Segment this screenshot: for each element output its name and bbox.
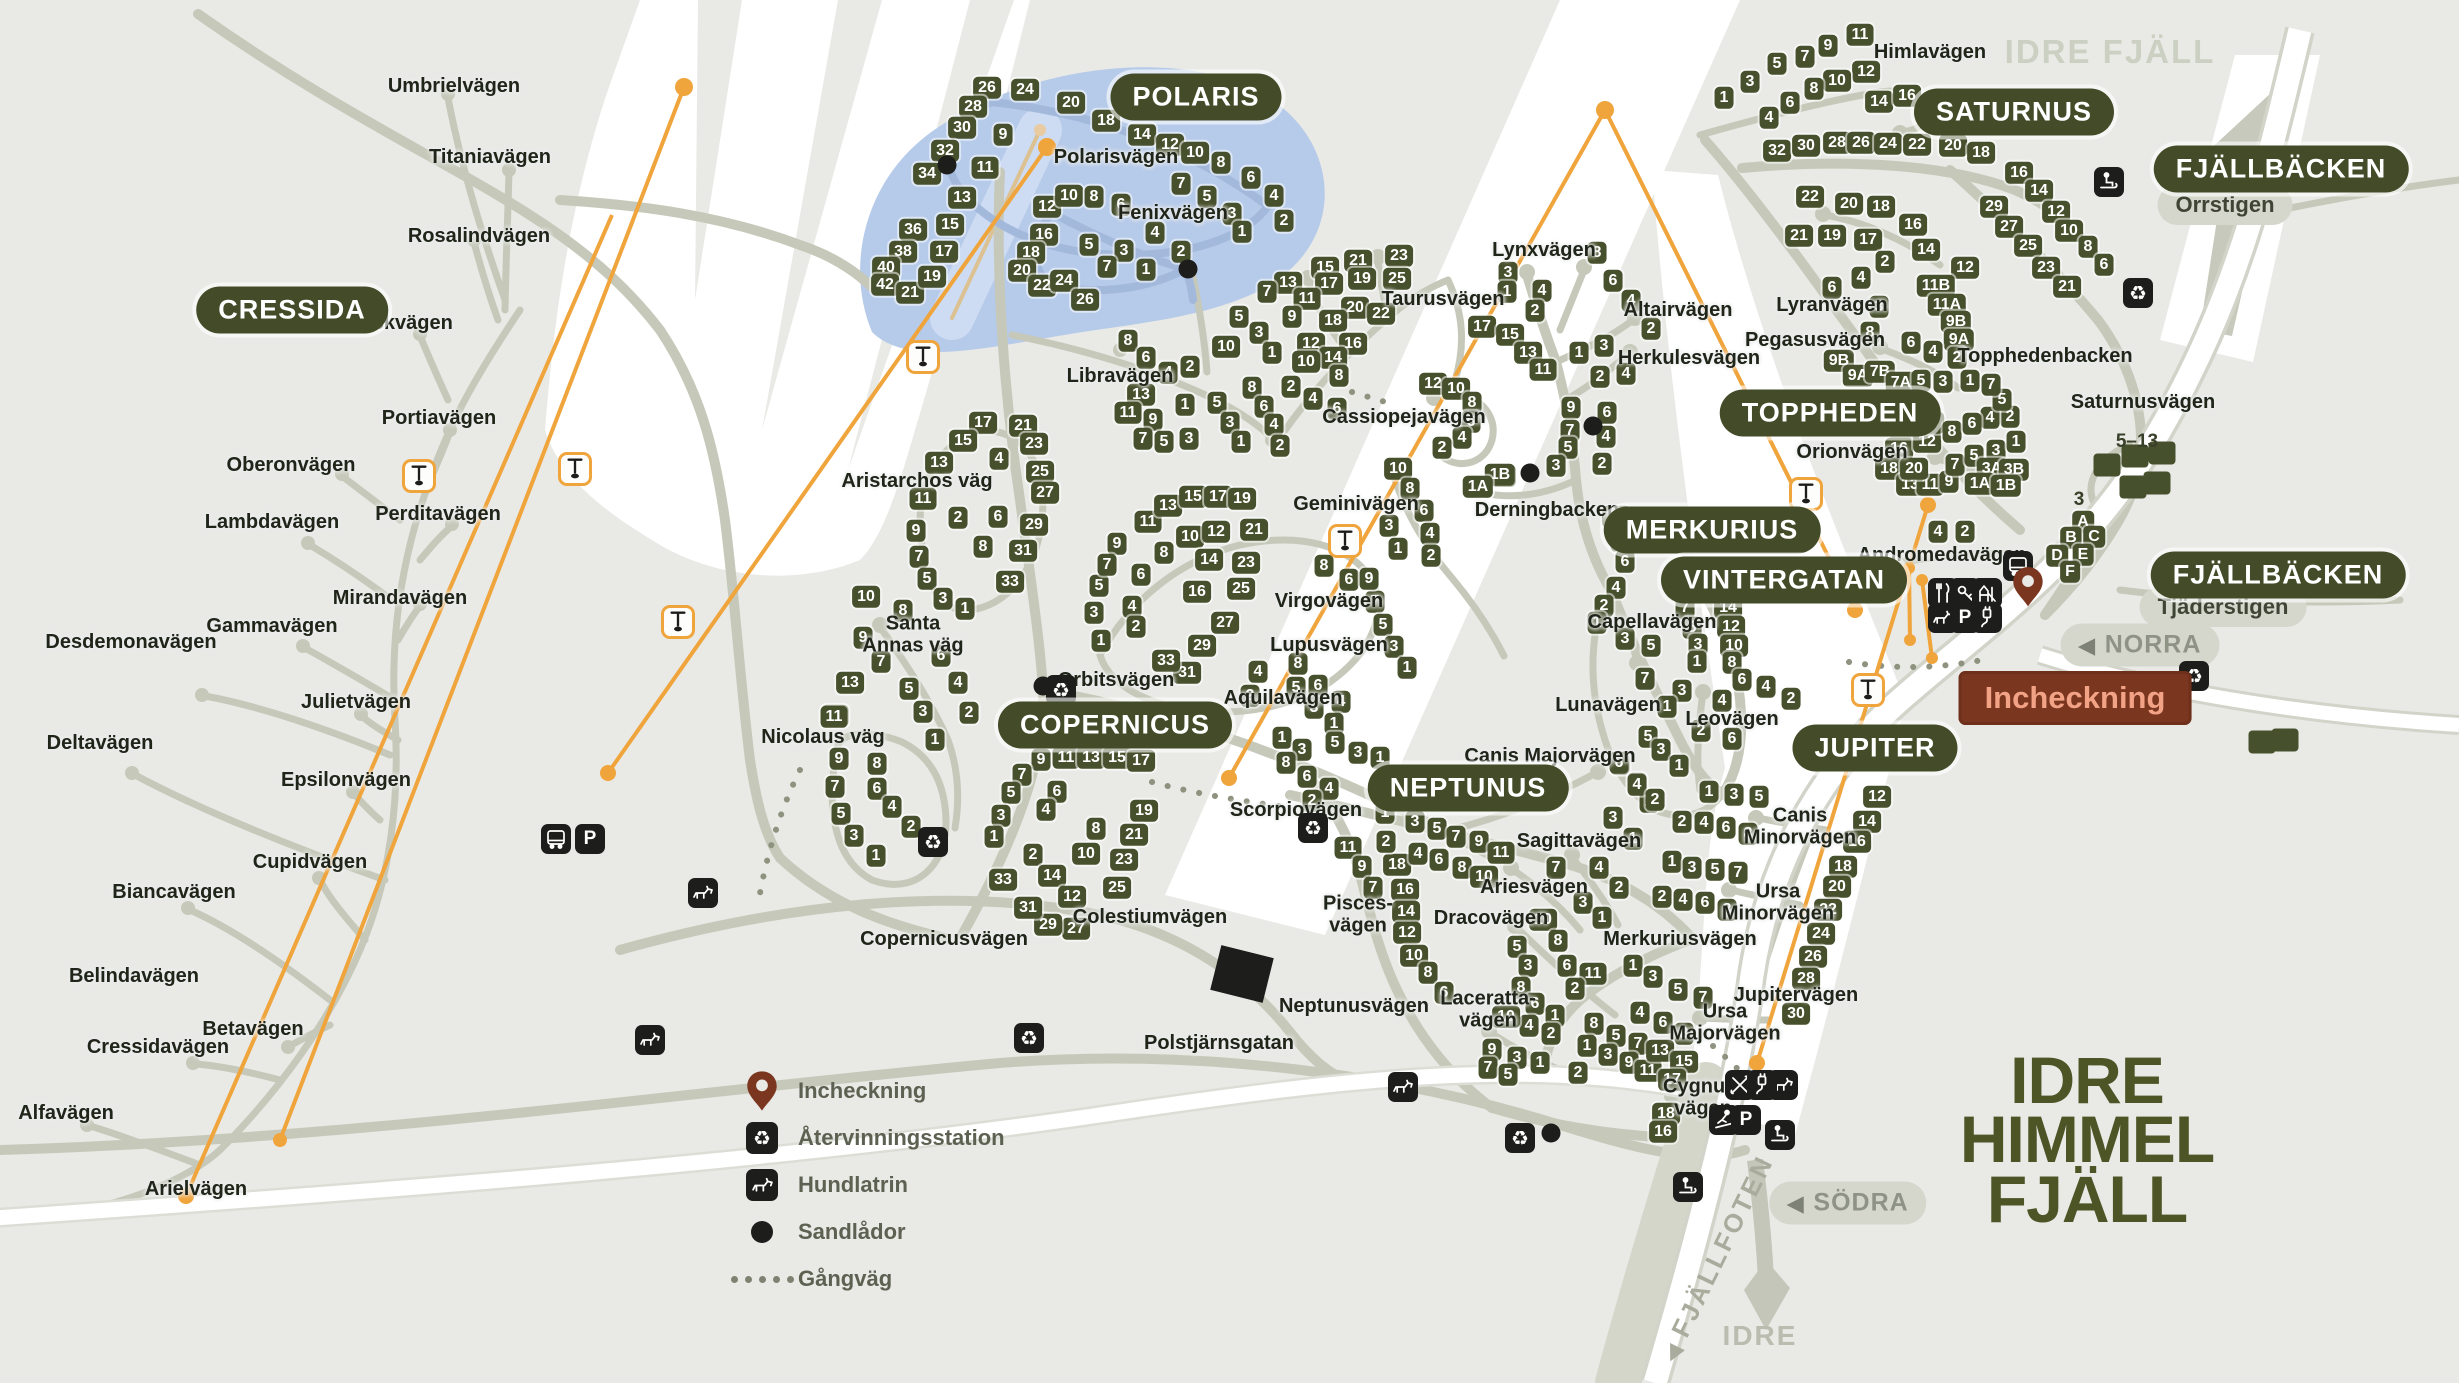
- plot-badge: 2: [1282, 376, 1301, 398]
- laddstation-icon: [1972, 603, 2002, 633]
- plot-badge: 19: [1130, 800, 1158, 822]
- plot-badge: 36: [899, 219, 927, 241]
- plot-badge: 5: [1642, 635, 1661, 657]
- plot-badge: 2: [1646, 789, 1665, 811]
- hundlatrin-icon: [688, 878, 718, 908]
- plot-badge: 2: [1653, 886, 1672, 908]
- plot-badge: 4: [1421, 523, 1440, 545]
- plot-badge: 4: [1631, 1002, 1650, 1024]
- plot-badge: 4: [1590, 857, 1609, 879]
- street-label: Geminivägen: [1293, 494, 1419, 516]
- plot-badge: 2: [1181, 356, 1200, 378]
- building-number-label: 3: [2074, 489, 2085, 511]
- plot-badge: 31: [1009, 540, 1037, 562]
- dog-latrine-icon: [742, 1169, 782, 1201]
- area-label-vintergatan: VINTERGATAN: [1661, 557, 1907, 604]
- plot-badge: 17: [930, 241, 958, 263]
- checkin-pin: [2011, 566, 2045, 613]
- plot-badge: 18: [1383, 854, 1411, 876]
- legend-item-sandboxes: Sandlådor: [742, 1213, 1005, 1251]
- plot-badge: 5: [900, 678, 919, 700]
- plot-badge: 9: [907, 520, 926, 542]
- street-label: Ursa Majorvägen: [1669, 1001, 1780, 1044]
- plot-badge: 5: [1428, 818, 1447, 840]
- plot-badge: 2: [1377, 831, 1396, 853]
- street-label: Julietvägen: [301, 692, 411, 714]
- plot-badge: 42: [871, 274, 899, 296]
- plot-badge: 5: [1499, 1064, 1518, 1086]
- plot-badge: 32: [1763, 140, 1791, 162]
- plot-badge: 7: [826, 776, 845, 798]
- plot-badge: 31: [1014, 897, 1042, 919]
- plot-badge: 3: [1250, 322, 1269, 344]
- plot-badge: 1: [1961, 370, 1980, 392]
- arrow-left-icon: ◀: [2079, 635, 2096, 658]
- plot-badge: 13: [1154, 495, 1182, 517]
- pulka-icon: [1673, 1172, 1703, 1202]
- logo-line-3: FJÄLL: [1960, 1170, 2214, 1229]
- plot-badge: 5: [1155, 431, 1174, 453]
- plot-badge: 24: [1874, 133, 1902, 155]
- plot-badge: 5: [1706, 859, 1725, 881]
- plot-badge: 6: [1298, 766, 1317, 788]
- plot-badge: 13: [836, 672, 864, 694]
- plot-badge: 3: [1180, 428, 1199, 450]
- plot-badge: 2: [1542, 1023, 1561, 1045]
- plot-badge: 16: [1183, 581, 1211, 603]
- plot-badge: 11: [1488, 842, 1515, 864]
- plot-badge: 4: [1757, 676, 1776, 698]
- plot-badge: 23: [1385, 245, 1413, 267]
- plot-badge: 17: [1127, 750, 1155, 772]
- plot-badge: 7: [1098, 256, 1117, 278]
- plot-badge: 7: [1258, 281, 1277, 303]
- plot-badge: 17: [1854, 229, 1882, 251]
- street-label: Himlavägen: [1874, 42, 1986, 64]
- plot-badge: 2: [949, 507, 968, 529]
- street-label: Ariesvägen: [1480, 877, 1588, 899]
- plot-badge: 2: [1566, 978, 1585, 1000]
- plot-badge: 1: [2007, 431, 2026, 453]
- plot-badge: 8: [1453, 857, 1472, 879]
- plot-badge: 6: [1733, 669, 1752, 691]
- plot-badge: 1: [985, 826, 1004, 848]
- area-label-fjällbäcken: FJÄLLBÄCKEN: [2154, 146, 2409, 193]
- plot-badge: 10: [1072, 843, 1100, 865]
- plot-badge: 8: [1330, 365, 1349, 387]
- plot-badge: 1: [1715, 87, 1734, 109]
- plot-badge: 17: [1468, 316, 1496, 338]
- plot-badge: 3: [934, 588, 953, 610]
- atervinning-icon: ♻: [1298, 813, 1328, 843]
- plot-badge: 3: [1115, 240, 1134, 262]
- pulka-icon: [2094, 167, 2124, 197]
- plot-badge: 9: [1360, 568, 1379, 590]
- plot-badge: 6: [1430, 849, 1449, 871]
- plot-badge: 12: [1951, 257, 1979, 279]
- sign-label: Orrstigen: [2175, 192, 2274, 217]
- plot-badge: 9: [994, 124, 1013, 146]
- street-label: Canis Minorvägen: [1744, 805, 1856, 848]
- plot-badge: 25: [1026, 461, 1054, 483]
- ski-lift-icon: [1328, 524, 1362, 558]
- plot-badge: 4: [1265, 185, 1284, 207]
- plot-badge: 7: [1982, 374, 2001, 396]
- plot-badge: 25: [1227, 578, 1255, 600]
- area-label-fjällbäcken: FJÄLLBÄCKEN: [2151, 552, 2406, 599]
- atervinning-icon: ♻: [1046, 675, 1076, 705]
- street-label: Mirandavägen: [333, 588, 467, 610]
- plot-badge: 9: [1353, 856, 1372, 878]
- sandbox-dot: [1521, 464, 1540, 483]
- plot-badge: 4: [883, 796, 902, 818]
- plot-badge: 26: [1799, 946, 1827, 968]
- plot-badge: 14: [1038, 865, 1066, 887]
- plot-badge: 1: [867, 845, 886, 867]
- plot-badge: 4: [1249, 661, 1268, 683]
- plot-badge: 18: [1092, 110, 1120, 132]
- plot-badge: 4: [990, 448, 1009, 470]
- pulka-icon: [1765, 1120, 1795, 1150]
- building-block: [2144, 472, 2171, 495]
- plot-badge: 4: [1453, 427, 1472, 449]
- plot-badge: 11: [972, 157, 999, 179]
- plot-badge: 5: [1326, 732, 1345, 754]
- street-label: Colestiumvägen: [1073, 907, 1227, 929]
- plot-badge: 1: [1092, 630, 1111, 652]
- recycling-icon: ♻: [742, 1122, 782, 1154]
- ski-lift-icon: [558, 452, 592, 486]
- plot-badge: 19: [1818, 225, 1846, 247]
- street-label: Gammavägen: [206, 616, 337, 638]
- plot-badge: 14: [2025, 180, 2053, 202]
- street-label: Capellavägen: [1588, 612, 1717, 634]
- plot-badge: 6: [1132, 564, 1151, 586]
- plot-badge: 2: [1271, 435, 1290, 457]
- street-label: Merkuriusvägen: [1603, 929, 1756, 951]
- plot-badge: 6: [1242, 167, 1261, 189]
- plot-badge: 2: [1433, 437, 1452, 459]
- legend-item-dog-latrine: Hundlatrin: [742, 1166, 1005, 1204]
- plot-badge: 7: [910, 546, 929, 568]
- plot-badge: 1: [1389, 538, 1408, 560]
- plot-badge: 1: [1578, 1035, 1597, 1057]
- plot-badge: 1: [1700, 781, 1719, 803]
- plot-badge: 18: [1867, 196, 1895, 218]
- plot-badge: 22: [1796, 186, 1824, 208]
- street-label: Copernicusvägen: [860, 929, 1028, 951]
- sandbox-dot: [1179, 260, 1198, 279]
- plot-badge: 16: [1649, 1121, 1677, 1143]
- plot-badge: 8: [1085, 186, 1104, 208]
- plot-badge: 3: [1683, 857, 1702, 879]
- plot-badge: 33: [996, 571, 1024, 593]
- plot-badge: 15: [949, 430, 977, 452]
- street-label: Pisces- vägen: [1323, 893, 1393, 936]
- plot-badge: F: [2060, 561, 2080, 583]
- street-label: Cupidvägen: [253, 852, 367, 874]
- street-label: Lupusvägen: [1270, 635, 1388, 657]
- plot-badge: 19: [1348, 268, 1376, 290]
- street-label: Epsilonvägen: [281, 770, 411, 792]
- plot-badge: 10: [1181, 142, 1209, 164]
- plot-badge: 9: [1108, 533, 1127, 555]
- plot-badge: 7: [1134, 428, 1153, 450]
- plot-badge: 4: [1628, 774, 1647, 796]
- plot-badge: 2: [1422, 545, 1441, 567]
- plot-badge: 29: [1020, 514, 1048, 536]
- plot-badge: 8: [1419, 962, 1438, 984]
- plot-badge: 3: [1349, 742, 1368, 764]
- street-label: Desdemonavägen: [45, 632, 216, 654]
- plot-badge: 4: [1265, 414, 1284, 436]
- plot-badge: 8: [868, 753, 887, 775]
- ski-lift-icon: [402, 459, 436, 493]
- street-label: Pegasusvägen: [1745, 330, 1885, 352]
- plot-badge: 24: [1807, 923, 1835, 945]
- plot-badge: 5: [1669, 979, 1688, 1001]
- street-label: Arielvägen: [145, 1179, 247, 1201]
- plot-badge: 11: [1115, 402, 1142, 424]
- plot-badge: 6: [1696, 892, 1715, 914]
- street-label: Lynxvägen: [1492, 240, 1596, 262]
- plot-badge: 2: [960, 702, 979, 724]
- street-label: Biancavägen: [112, 882, 235, 904]
- plot-badge: 2: [1782, 688, 1801, 710]
- plot-badge: 10: [1176, 526, 1204, 548]
- plot-badge: 29: [1188, 635, 1216, 657]
- plot-badge: 14: [1912, 239, 1940, 261]
- legend-item-footpath: Gångväg: [742, 1260, 1005, 1298]
- plot-badge: 27: [1211, 612, 1239, 634]
- plot-badge: 6: [1963, 413, 1982, 435]
- plot-badge: 2: [1610, 877, 1629, 899]
- plot-badge: 20: [1835, 193, 1863, 215]
- area-label-jupiter: JUPITER: [1792, 725, 1957, 772]
- plot-badge: 1B: [1991, 475, 2021, 497]
- street-label: Virgovägen: [1275, 591, 1384, 613]
- plot-badge: 1: [1670, 755, 1689, 777]
- map-legend: Incheckning ♻ Återvinningsstation Hundla…: [742, 1072, 1005, 1307]
- plot-badge: 27: [1031, 482, 1059, 504]
- plot-badge: 21: [1785, 225, 1813, 247]
- plot-badge: 3: [1644, 966, 1663, 988]
- plot-badge: 5: [1002, 782, 1021, 804]
- street-label: Orionvägen: [1796, 442, 1907, 464]
- street-label: Saturnusvägen: [2071, 392, 2215, 414]
- idre-fjall-direction-label: IDRE FJÄLL: [2005, 33, 2216, 71]
- plot-badge: 3: [1725, 784, 1744, 806]
- plot-badge: 21: [2053, 276, 2081, 298]
- street-label: Lambdavägen: [205, 512, 339, 534]
- resort-map: IDRE FJÄLL IDRE HIMMEL FJÄLL Incheckning…: [0, 0, 2459, 1383]
- plot-badge: 3: [1085, 602, 1104, 624]
- plot-badge: 10: [852, 586, 880, 608]
- plot-badge: 7: [1636, 668, 1655, 690]
- plot-badge: 15: [936, 214, 964, 236]
- legend-label: Hundlatrin: [798, 1172, 908, 1198]
- plot-badge: 4: [1304, 388, 1323, 410]
- sandbox-dot: [938, 156, 957, 175]
- plot-badge: 9: [1562, 397, 1581, 419]
- plot-badge: 6: [1781, 92, 1800, 114]
- plot-badge: 26: [1847, 132, 1875, 154]
- plot-badge: 3: [1380, 515, 1399, 537]
- plot-badge: 8: [1087, 818, 1106, 840]
- plot-badge: 6: [1340, 569, 1359, 591]
- plot-badge: 12: [1202, 521, 1230, 543]
- street-label: Oberonvägen: [227, 455, 356, 477]
- plot-badge: 1: [1232, 431, 1251, 453]
- plot-badge: 2: [1275, 210, 1294, 232]
- plot-badge: 3: [1934, 371, 1953, 393]
- plot-badge: 8: [1277, 752, 1296, 774]
- plot-badge: 26: [1071, 289, 1099, 311]
- plot-badge: 1: [1593, 907, 1612, 929]
- sign-label: SÖDRA: [1813, 1189, 1908, 1217]
- plot-badge: 24: [1011, 79, 1039, 101]
- laddstation-icon: [1747, 1070, 1777, 1100]
- street-label: Polarisvägen: [1054, 147, 1179, 169]
- plot-badge: 5: [1208, 392, 1227, 414]
- plot-badge: 1: [1263, 342, 1282, 364]
- street-label: Sagittavägen: [1517, 831, 1641, 853]
- plot-badge: 4: [1409, 843, 1428, 865]
- plot-badge: 8: [1585, 1013, 1604, 1035]
- plot-badge: 6: [1604, 270, 1623, 292]
- street-label: Umbrielvägen: [388, 76, 520, 98]
- atervinning-icon: ♻: [918, 827, 948, 857]
- plot-badge: 8: [1549, 930, 1568, 952]
- plot-badge: 9: [830, 748, 849, 770]
- plot-badge: 4: [1037, 799, 1056, 821]
- legend-item-recycling: ♻ Återvinningsstation: [742, 1119, 1005, 1157]
- plot-badge: 13: [948, 187, 976, 209]
- plot-badge: 12: [1058, 886, 1086, 908]
- hundlatrin-icon: [635, 1025, 665, 1055]
- plot-badge: 23: [1110, 849, 1138, 871]
- plot-badge: 4: [1320, 778, 1339, 800]
- area-label-neptunus: NEPTUNUS: [1368, 765, 1569, 812]
- plot-badge: 6: [1558, 955, 1577, 977]
- street-label: Polstjärnsgatan: [1144, 1033, 1294, 1055]
- area-label-cressida: CRESSIDA: [196, 287, 388, 334]
- plot-badge: 9: [1470, 831, 1489, 853]
- plot-badge: 14: [1865, 91, 1893, 113]
- plot-badge: 8: [1212, 152, 1231, 174]
- plot-badge: 2: [1591, 366, 1610, 388]
- street-label: Herkulesvägen: [1618, 348, 1760, 370]
- plot-badge: 8: [1805, 78, 1824, 100]
- building-block: [2120, 476, 2147, 499]
- plot-badge: 11: [1053, 747, 1080, 769]
- parkering-icon: P: [1731, 1105, 1761, 1135]
- street-label: Cressidavägen: [87, 1037, 229, 1059]
- plot-badge: 14: [1128, 124, 1156, 146]
- plot-badge: 6: [989, 506, 1008, 528]
- plot-badge: 19: [918, 266, 946, 288]
- sign-label: NORRA: [2105, 631, 2202, 659]
- plot-badge: 1: [1663, 851, 1682, 873]
- plot-badge: 12: [1863, 786, 1891, 808]
- plot-badge: 33: [989, 869, 1017, 891]
- plot-badge: 3: [992, 805, 1011, 827]
- plot-badge: 1: [1273, 727, 1292, 749]
- plot-badge: 6: [1616, 551, 1635, 573]
- plot-badge: 11: [1847, 24, 1874, 46]
- building-block: [2094, 454, 2121, 477]
- plot-badge: 10: [1055, 185, 1083, 207]
- plot-badge: 3: [1547, 455, 1566, 477]
- buss-icon: [541, 824, 571, 854]
- plot-badge: 16: [1391, 879, 1419, 901]
- footpath-icon: [742, 1276, 782, 1283]
- sandbox-icon: [742, 1221, 782, 1243]
- legend-item-checkin: Incheckning: [742, 1072, 1005, 1110]
- plot-badge: 25: [1103, 877, 1131, 899]
- area-label-merkurius: MERKURIUS: [1604, 507, 1821, 554]
- plot-badge: 3: [1652, 739, 1671, 761]
- plot-badge: 21: [1120, 824, 1148, 846]
- street-label: Rosalindvägen: [408, 226, 550, 248]
- plot-badge: 20: [1057, 92, 1085, 114]
- street-label: Neptunusvägen: [1279, 996, 1429, 1018]
- street-label: Fenixvägen: [1118, 203, 1228, 225]
- plot-badge: 4: [1146, 222, 1165, 244]
- area-label-saturnus: SATURNUS: [1914, 89, 2114, 136]
- area-label-copernicus: COPERNICUS: [998, 702, 1232, 749]
- plot-badge: 14: [1195, 549, 1223, 571]
- plot-badge: 4: [1924, 341, 1943, 363]
- plot-badge: 7: [1447, 826, 1466, 848]
- plot-badge: 2: [1673, 811, 1692, 833]
- plot-badge: 4: [1852, 267, 1871, 289]
- street-label: Cassiopejavägen: [1322, 407, 1485, 429]
- plot-badge: 9: [1819, 35, 1838, 57]
- idre-direction-label: IDRE: [1723, 1320, 1798, 1352]
- plot-badge: 23: [1020, 433, 1048, 455]
- street-label: Scorpiovägen: [1230, 800, 1362, 822]
- ski-lift-icon: [1851, 673, 1885, 707]
- plot-badge: 28: [959, 96, 987, 118]
- sign-södra: ◀SÖDRA: [1769, 1182, 1926, 1225]
- plot-badge: 5: [832, 803, 851, 825]
- plot-badge: 8: [1119, 330, 1138, 352]
- plot-badge: 8: [1155, 542, 1174, 564]
- plot-badge: 30: [1792, 135, 1820, 157]
- legend-label: Incheckning: [798, 1078, 926, 1104]
- plot-badge: 3: [1741, 71, 1760, 93]
- plot-badge: 4: [1674, 889, 1693, 911]
- plot-badge: 10: [1212, 336, 1240, 358]
- plot-badge: 1: [1233, 221, 1252, 243]
- street-label: Taurusvägen: [1382, 289, 1505, 311]
- street-label: Aristarchos väg: [841, 471, 992, 493]
- plot-badge: 1A: [1463, 476, 1493, 498]
- sandbox-dot: [1542, 1124, 1561, 1143]
- street-label: Derningbacken: [1475, 500, 1619, 522]
- street-label: Santa Annas väg: [862, 613, 963, 656]
- plot-badge: 2: [1956, 521, 1975, 543]
- ski-lift-icon: [661, 605, 695, 639]
- legend-label: Återvinningsstation: [798, 1125, 1005, 1151]
- plot-badge: 1: [1531, 1052, 1550, 1074]
- street-label: Jupitervägen: [1734, 985, 1858, 1007]
- atervinning-icon: ♻: [1505, 1123, 1535, 1153]
- plot-badge: 15: [1179, 486, 1207, 508]
- plot-badge: 4: [1695, 812, 1714, 834]
- checkin-pin-icon: [742, 1070, 782, 1112]
